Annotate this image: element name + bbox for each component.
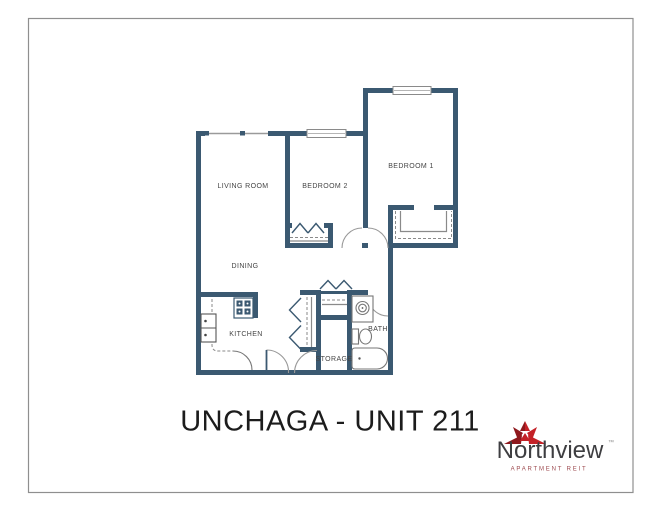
room-label-bedroom-2: BEDROOM 2 bbox=[302, 183, 348, 190]
hall-closet-bifold-icon bbox=[336, 281, 352, 290]
wall-bed1-right bbox=[453, 88, 458, 248]
kitchen-sink-dot bbox=[204, 320, 207, 323]
wall-left bbox=[196, 131, 201, 375]
stove-burner-dot bbox=[247, 311, 249, 313]
trademark-symbol: ™ bbox=[608, 439, 614, 446]
wall-corridor-right bbox=[388, 205, 393, 375]
wall-bed2-closet-stub-l bbox=[285, 223, 292, 228]
floor-plan-canvas: LIVING ROOM BEDROOM 2 BEDROOM 1 DINING K… bbox=[0, 0, 663, 512]
bedroom1-closet-shelf-dashed bbox=[396, 211, 452, 239]
living-room-window-mullion-2 bbox=[240, 131, 245, 136]
room-label-bedroom-1: BEDROOM 1 bbox=[388, 163, 434, 170]
kitchen-door-arc bbox=[267, 350, 289, 373]
toilet-tank-icon bbox=[352, 329, 359, 344]
bathtub-icon bbox=[352, 348, 388, 369]
stove-burner-dot bbox=[247, 303, 249, 305]
wall-bed2-closet-stub-r bbox=[324, 223, 333, 228]
brand-tagline: APARTMENT REIT bbox=[511, 467, 588, 473]
page-title: UNCHAGA - UNIT 211 bbox=[180, 406, 480, 438]
wall-top-a bbox=[196, 131, 205, 136]
brand-name: Northview bbox=[497, 437, 604, 464]
tall-closet-bifold-icon bbox=[290, 326, 302, 350]
wall-living-bed2-divider bbox=[285, 131, 290, 248]
wall-closet-front-line bbox=[316, 291, 352, 294]
kitchen-counter-edge bbox=[233, 351, 252, 370]
bedroom2-bifold-icon bbox=[308, 224, 324, 234]
northview-logo: Northview ™ APARTMENT REIT bbox=[497, 421, 614, 473]
wall-kitchen-top bbox=[196, 292, 258, 297]
floorplan: LIVING ROOM BEDROOM 2 BEDROOM 1 DINING K… bbox=[196, 87, 458, 376]
room-label-storage: STORAGE bbox=[316, 356, 353, 363]
room-label-bath: BATH bbox=[368, 326, 388, 333]
stove-burner-dot bbox=[239, 303, 241, 305]
bedroom2-bifold-icon bbox=[292, 224, 308, 234]
wall-door-stub bbox=[362, 243, 368, 248]
windows bbox=[204, 87, 431, 138]
kitchen-sink-dot bbox=[204, 334, 207, 337]
bedroom1-door-arc bbox=[368, 228, 388, 248]
wall-kitchen-stub bbox=[253, 292, 258, 318]
wall-hall-closet-bottom bbox=[316, 315, 352, 320]
wall-bed2-closet-bottom bbox=[285, 243, 333, 248]
room-label-dining: DINING bbox=[232, 263, 259, 270]
maple-leaf-facet bbox=[520, 421, 525, 431]
wall-closet-block-top-l bbox=[300, 290, 316, 295]
room-labels: LIVING ROOM BEDROOM 2 BEDROOM 1 DINING K… bbox=[217, 163, 433, 363]
bathtub-drain bbox=[358, 357, 360, 359]
floor-plan-page: LIVING ROOM BEDROOM 2 BEDROOM 1 DINING K… bbox=[0, 0, 663, 512]
tall-closet-bifold-icon bbox=[290, 298, 302, 322]
stove-burner-dot bbox=[239, 311, 241, 313]
storage-door-arc bbox=[295, 351, 318, 374]
bath-sink-drain bbox=[362, 307, 364, 309]
living-room-window-mullion-1 bbox=[204, 131, 209, 136]
maple-leaf-facet bbox=[525, 421, 530, 431]
bedroom2-door-arc bbox=[342, 228, 362, 248]
room-label-living-room: LIVING ROOM bbox=[217, 183, 268, 190]
wall-bed1-bottom bbox=[388, 243, 458, 248]
wall-bed1-closet-top-right bbox=[434, 205, 458, 210]
room-label-kitchen: KITCHEN bbox=[229, 331, 263, 338]
bedroom1-closet-rod bbox=[401, 211, 447, 232]
hall-closet-bifold-icon bbox=[320, 281, 336, 290]
wall-bed1-left bbox=[363, 88, 368, 228]
